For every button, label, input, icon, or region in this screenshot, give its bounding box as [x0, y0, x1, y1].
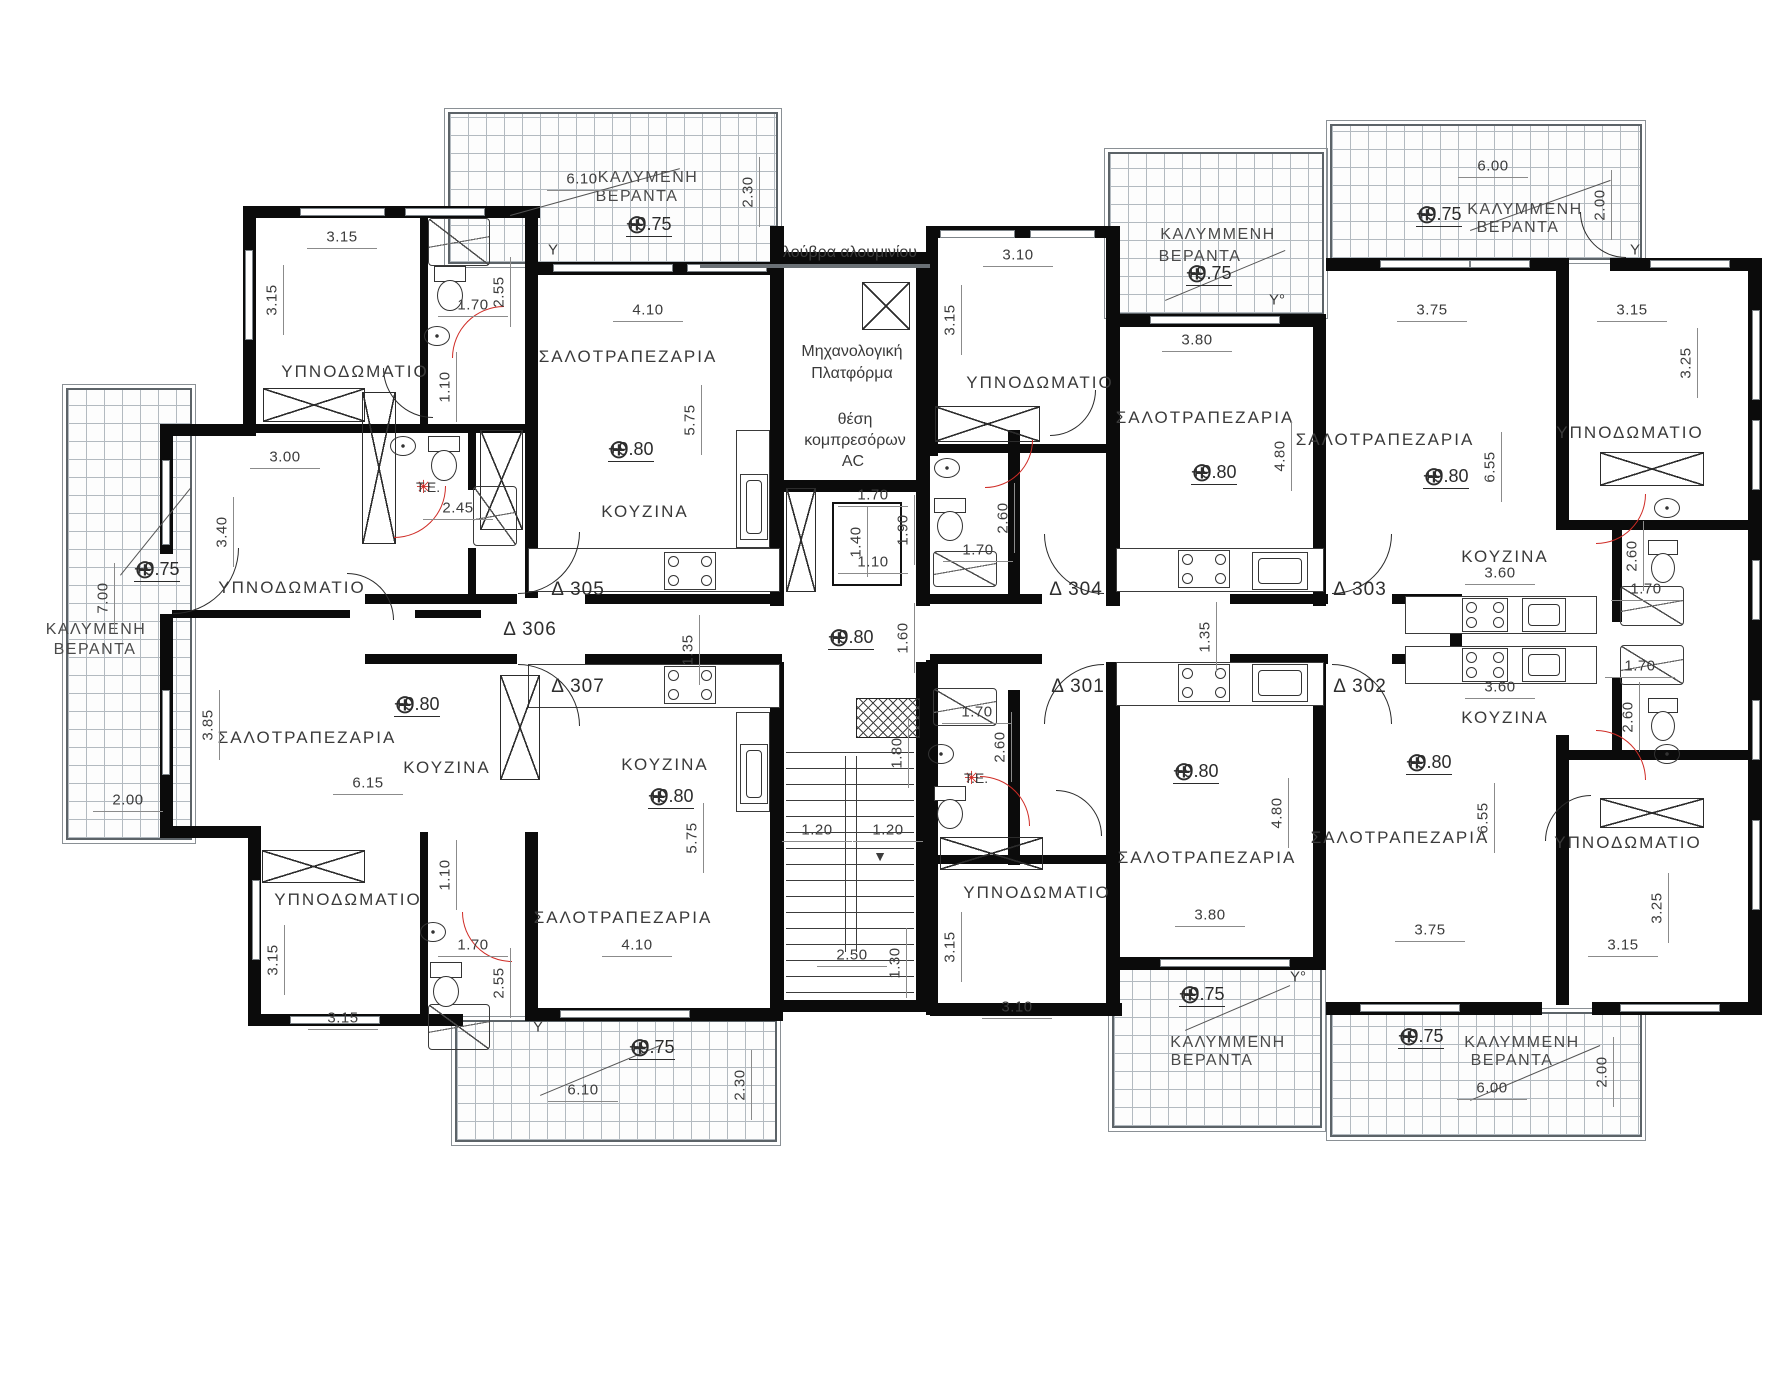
- dimension-label: 1.35: [1197, 621, 1214, 652]
- shower-icon: [428, 218, 490, 266]
- toilet-bowl-icon: [433, 976, 459, 1007]
- dimension-line: [817, 966, 887, 967]
- toilet-bowl-icon: [937, 799, 963, 829]
- dimension-line: [983, 266, 1053, 267]
- dimension-label: 2.55: [491, 276, 508, 307]
- closet-crossbox: [262, 850, 365, 883]
- burner-icon: [1215, 687, 1226, 698]
- window: [1752, 310, 1760, 400]
- burner-icon: [1466, 652, 1477, 663]
- burner-icon: [1493, 652, 1504, 663]
- elevation-value: +9.80: [1173, 761, 1219, 784]
- stair-direction-arrow: ▼: [873, 848, 887, 864]
- stove-icon: [1178, 664, 1230, 702]
- sink-icon: [1522, 598, 1566, 632]
- toilet-bowl-icon: [1651, 711, 1675, 741]
- elevation-value: +9.80: [608, 439, 654, 462]
- dimension-label: 7.00: [95, 582, 112, 613]
- burner-icon: [1215, 573, 1226, 584]
- dimension-line: [914, 603, 915, 673]
- toilet-bowl-icon: [937, 511, 963, 541]
- dimension-line: [1291, 421, 1292, 491]
- dimension-label: 2.60: [1624, 540, 1641, 571]
- annotation-label: θέση: [838, 411, 873, 429]
- dimension-line: [1014, 483, 1015, 553]
- dimension-line: [438, 956, 508, 957]
- toilet-bowl-icon: [1651, 553, 1675, 583]
- stove-icon: [664, 552, 716, 590]
- apartment-number-label: Δ 303: [1333, 579, 1387, 601]
- window: [162, 690, 170, 775]
- annotation-label: κομπρεσόρων: [804, 432, 906, 450]
- wall: [160, 424, 256, 436]
- room-label: ΥΠΝΟΔΩΜΑΤΙΟ: [218, 578, 365, 598]
- dimension-label: 3.80: [1181, 332, 1212, 349]
- annotation-label: λούβρα αλουμινίου: [783, 244, 917, 262]
- dimension-label: 4.80: [1269, 797, 1286, 828]
- sink-basin-icon: [1528, 654, 1560, 676]
- covered-veranda-area: [455, 1020, 777, 1142]
- room-label: ΚΟΥΖΙΝΑ: [601, 502, 689, 522]
- room-label: ΥΠΝΟΔΩΜΑΤΙΟ: [1554, 833, 1701, 853]
- elevation-value: +9.75: [1416, 204, 1462, 227]
- dimension-label: 3.15: [327, 1010, 358, 1027]
- dimension-line: [1175, 926, 1245, 927]
- dimension-label: 1.70: [1624, 658, 1655, 675]
- dimension-label: 6.15: [352, 775, 383, 792]
- dimension-label: 1.90: [895, 514, 912, 545]
- dimension-label: 1.10: [857, 554, 888, 571]
- dimension-label: 3.15: [942, 304, 959, 335]
- burner-icon: [701, 689, 712, 700]
- dimension-line: [853, 841, 923, 842]
- burner-icon: [701, 575, 712, 586]
- door-arc: [1056, 790, 1102, 836]
- wall: [770, 662, 784, 1012]
- stove-icon: [1462, 648, 1508, 682]
- dimension-line: [1639, 682, 1640, 752]
- washbasin-icon: [390, 436, 416, 456]
- closet-crossbox: [362, 392, 396, 544]
- window: [1620, 1004, 1720, 1012]
- window: [1752, 420, 1760, 490]
- room-label: ΚΟΥΖΙΝΑ: [621, 755, 709, 775]
- elevation-value: +9.75: [1398, 1026, 1444, 1049]
- window: [405, 208, 485, 216]
- washbasin-icon: [1654, 744, 1680, 764]
- dimension-label: 6.00: [1477, 158, 1508, 175]
- toilet-icon: [1648, 540, 1678, 584]
- wall: [782, 1000, 918, 1012]
- window: [1380, 260, 1470, 268]
- wall: [248, 206, 540, 218]
- elevation-value: +9.80: [394, 694, 440, 717]
- dimension-label: 3.25: [1649, 892, 1666, 923]
- dimension-label: 3.00: [269, 449, 300, 466]
- dimension-label: 4.10: [632, 302, 663, 319]
- veranda-label: ΚΑΛΥΜΜΕΝΗ: [1464, 1034, 1579, 1052]
- dimension-label: 6.55: [1482, 451, 1499, 482]
- room-label: ΣΑΛΟΤΡΑΠΕΖΑΡΙΑ: [1296, 430, 1475, 450]
- closet-crossbox: [263, 388, 365, 422]
- wall: [585, 594, 782, 604]
- wall: [172, 610, 350, 618]
- veranda-label: ΚΑΛΥΜΕΝΗ: [598, 169, 699, 187]
- burner-icon: [701, 670, 712, 681]
- veranda-label: ΒΕΡΑΝΤΑ: [1471, 1052, 1554, 1070]
- burner-icon: [1182, 668, 1193, 679]
- window: [1030, 230, 1095, 238]
- apartment-number-label: Δ 304: [1049, 579, 1103, 601]
- dimension-line: [1465, 584, 1535, 585]
- wall: [160, 826, 261, 838]
- wall: [525, 206, 538, 442]
- window: [940, 230, 1015, 238]
- dimension-label: 1.70: [961, 704, 992, 721]
- dimension-line: [943, 561, 1013, 562]
- veranda-label: ΚΑΛΥΜΜΕΝΗ: [1170, 1034, 1285, 1052]
- room-label: ΥΠΝΟΔΩΜΑΤΙΟ: [963, 883, 1110, 903]
- sink-basin-icon: [1258, 558, 1302, 584]
- dimension-label: 2.60: [995, 502, 1012, 533]
- dimension-line: [1458, 177, 1528, 178]
- shower-icon: [428, 1004, 490, 1050]
- elevation-value: +9.80: [1406, 752, 1452, 775]
- elevation-value: +9.75: [626, 214, 672, 237]
- veranda-label: ΒΕΡΑΝΤΑ: [54, 641, 137, 659]
- dimension-label: 6.10: [566, 171, 597, 188]
- bathroom-door-arc: [1596, 494, 1646, 544]
- dimension-line: [1611, 600, 1681, 601]
- washbasin-icon: [420, 922, 446, 942]
- dimension-label: 3.25: [1678, 347, 1695, 378]
- burner-icon: [668, 670, 679, 681]
- veranda-label: ΚΑΛΥΜΜΕΝΗ: [1160, 226, 1275, 244]
- washbasin-icon: [424, 326, 450, 346]
- dimension-line: [1597, 321, 1667, 322]
- bathroom-door-arc: [452, 306, 504, 358]
- stove-icon: [1462, 598, 1508, 632]
- burner-icon: [668, 556, 679, 567]
- apartment-number-label: Δ 302: [1333, 676, 1387, 698]
- dimension-label: 4.10: [621, 937, 652, 954]
- dimension-label: 1.10: [437, 859, 454, 890]
- dimension-line: [1611, 170, 1612, 240]
- dimension-line: [908, 718, 909, 788]
- dimension-line: [250, 468, 320, 469]
- dimension-label: 1.10: [437, 371, 454, 402]
- dimension-line: [914, 495, 915, 565]
- apartment-number-label: Δ 301: [1051, 676, 1105, 698]
- wall: [1230, 594, 1328, 604]
- burner-icon: [701, 556, 712, 567]
- dimension-line: [1697, 328, 1698, 398]
- dimension-label: 2.30: [740, 176, 757, 207]
- dimension-line: [1494, 783, 1495, 853]
- dimension-line: [703, 803, 704, 873]
- closet-crossbox: [1600, 798, 1704, 828]
- elevation-value: +9.75: [629, 1037, 675, 1060]
- dimension-label: 1.70: [457, 937, 488, 954]
- wall: [1556, 735, 1569, 1005]
- dimension-line: [93, 811, 163, 812]
- burner-icon: [1493, 602, 1504, 613]
- veranda-label: ΒΕΡΑΝΤΑ: [1171, 1052, 1254, 1070]
- toilet-icon: [428, 436, 460, 482]
- bathroom-door-arc: [985, 440, 1033, 488]
- dimension-line: [1162, 351, 1232, 352]
- dimension-line: [1395, 941, 1465, 942]
- dimension-label: 2.00: [1594, 1056, 1611, 1087]
- wall: [1313, 662, 1326, 962]
- toilet-icon: [934, 786, 966, 830]
- dimension-line: [284, 925, 285, 995]
- closet-crossbox: [862, 282, 910, 330]
- dimension-label: 3.10: [1002, 247, 1033, 264]
- dimension-label: 6.00: [1476, 1080, 1507, 1097]
- dimension-line: [308, 1029, 378, 1030]
- dimension-line: [548, 1101, 618, 1102]
- sink-icon: [1522, 648, 1566, 682]
- sink-basin-icon: [1258, 670, 1302, 696]
- dimension-line: [1011, 712, 1012, 782]
- te-label: Τ.Ε.: [416, 479, 440, 495]
- sink-icon: [740, 474, 768, 540]
- burner-icon: [1466, 617, 1477, 628]
- dimension-label: 6.55: [1475, 802, 1492, 833]
- aluminium-louvre: [700, 264, 930, 268]
- dimension-line: [1605, 677, 1675, 678]
- dimension-line: [782, 841, 852, 842]
- closet-crossbox: [1600, 452, 1704, 486]
- shower-icon: [473, 486, 517, 546]
- dimension-label: 3.15: [1607, 937, 1638, 954]
- dimension-label: 2.60: [1620, 701, 1637, 732]
- elevation-value: +9.80: [828, 627, 874, 650]
- burner-icon: [1182, 687, 1193, 698]
- dimension-line: [699, 615, 700, 685]
- section-marker: Y°: [1290, 969, 1306, 986]
- dimension-line: [1501, 432, 1502, 502]
- te-label: Τ.Ε.: [964, 770, 988, 786]
- window: [1752, 700, 1760, 760]
- dimension-line: [1668, 873, 1669, 943]
- dimension-label: 3.75: [1416, 302, 1447, 319]
- washbasin-icon: [1654, 498, 1680, 518]
- dimension-label: 2.60: [992, 731, 1009, 762]
- stove-icon: [1178, 550, 1230, 588]
- apartment-number-label: Δ 307: [551, 676, 605, 698]
- room-label: ΣΑΛΟΤΡΑΠΕΖΑΡΙΑ: [1311, 828, 1490, 848]
- burner-icon: [1182, 554, 1193, 565]
- burner-icon: [1466, 602, 1477, 613]
- dimension-label: 1.35: [680, 634, 697, 665]
- sink-basin-icon: [746, 750, 762, 798]
- washbasin-icon: [928, 744, 954, 764]
- burner-icon: [668, 689, 679, 700]
- dimension-line: [1457, 1099, 1527, 1100]
- dimension-label: 4.80: [1272, 440, 1289, 471]
- wall: [468, 428, 476, 490]
- sink-icon: [1252, 664, 1308, 702]
- dimension-label: 3.60: [1484, 679, 1515, 696]
- elevation-value: +9.75: [1179, 984, 1225, 1007]
- dimension-label: 3.15: [264, 284, 281, 315]
- dimension-line: [961, 285, 962, 355]
- dimension-line: [547, 190, 617, 191]
- room-label: ΥΠΝΟΔΩΜΑΤΙΟ: [274, 890, 421, 910]
- dimension-label: 1.80: [889, 737, 906, 768]
- dimension-label: 1.20: [872, 822, 903, 839]
- dimension-line: [456, 352, 457, 422]
- veranda-label: ΚΑΛΥΜΜΕΝΗ: [1467, 201, 1582, 219]
- dimension-line: [838, 573, 908, 574]
- dimension-line: [114, 563, 115, 633]
- window: [245, 250, 253, 340]
- dimension-line: [233, 497, 234, 567]
- wall: [930, 594, 1042, 604]
- dimension-line: [613, 321, 683, 322]
- wall: [415, 610, 481, 618]
- elevation-value: +9.80: [1191, 462, 1237, 485]
- dimension-line: [838, 506, 908, 507]
- room-label: ΣΑΛΟΤΡΑΠΕΖΑΡΙΑ: [1118, 848, 1297, 868]
- window: [560, 1010, 690, 1018]
- closet-crossbox: [940, 837, 1043, 870]
- window: [252, 880, 260, 960]
- dimension-label: 2.30: [732, 1069, 749, 1100]
- window: [162, 460, 170, 545]
- window: [300, 208, 385, 216]
- burner-icon: [668, 575, 679, 586]
- dimension-line: [602, 956, 672, 957]
- dimension-line: [510, 257, 511, 327]
- dimension-label: 1.20: [801, 822, 832, 839]
- dimension-label: 2.00: [112, 792, 143, 809]
- elevation-value: +9.80: [1423, 466, 1469, 489]
- door-arc: [1050, 390, 1096, 436]
- sink-basin-icon: [1528, 604, 1560, 626]
- toilet-icon: [430, 962, 462, 1008]
- closet-crossbox: [786, 488, 816, 592]
- dimension-line: [1588, 956, 1658, 957]
- dimension-line: [219, 690, 220, 760]
- room-label: ΥΠΝΟΔΩΜΑΤΙΟ: [1556, 423, 1703, 443]
- elevation-value: +9.75: [1186, 263, 1232, 286]
- dimension-label: 2.00: [1592, 189, 1609, 220]
- dimension-line: [1465, 698, 1535, 699]
- dimension-label: 1.30: [887, 947, 904, 978]
- dimension-label: 2.45: [442, 500, 473, 517]
- dimension-line: [307, 248, 377, 249]
- annotation-label: Μηχανολογική: [801, 343, 902, 361]
- closet-crossbox: [935, 406, 1040, 442]
- apartment-number-label: Δ 306: [503, 619, 557, 641]
- room-label: ΚΟΥΖΙΝΑ: [403, 758, 491, 778]
- dimension-label: 6.10: [567, 1082, 598, 1099]
- wall: [1560, 520, 1760, 530]
- elevation-value: +9.75: [134, 559, 180, 582]
- room-label: ΥΠΝΟΔΩΜΑΤΙΟ: [966, 373, 1113, 393]
- veranda-label: ΚΑΛΥΜΕΝΗ: [46, 621, 147, 639]
- dimension-line: [423, 519, 493, 520]
- room-label: ΚΟΥΖΙΝΑ: [1461, 708, 1549, 728]
- dimension-label: 1.60: [895, 622, 912, 653]
- dimension-label: 1.70: [457, 297, 488, 314]
- dimension-label: 3.85: [200, 709, 217, 740]
- window: [1470, 260, 1530, 268]
- window: [1360, 1004, 1460, 1012]
- wall: [1556, 258, 1569, 530]
- dimension-line: [759, 157, 760, 227]
- stair-step: [786, 992, 914, 993]
- wall: [930, 654, 1042, 664]
- dimension-label: 5.75: [682, 404, 699, 435]
- dimension-label: 3.75: [1414, 922, 1445, 939]
- dimension-label: 3.15: [265, 944, 282, 975]
- wall: [468, 548, 476, 598]
- dimension-line: [438, 316, 508, 317]
- dimension-label: 3.15: [942, 931, 959, 962]
- veranda-label: ΒΕΡΑΝΤΑ: [1477, 219, 1560, 237]
- toilet-bowl-icon: [431, 450, 457, 481]
- room-label: ΥΠΝΟΔΩΜΑΤΙΟ: [281, 362, 428, 382]
- dimension-label: 3.15: [326, 229, 357, 246]
- annotation-label: AC: [842, 453, 864, 471]
- dimension-line: [1397, 321, 1467, 322]
- dimension-line: [456, 840, 457, 910]
- dimension-line: [1216, 602, 1217, 672]
- window: [553, 264, 673, 272]
- dimension-label: 1.70: [962, 542, 993, 559]
- window: [1650, 260, 1730, 268]
- wall: [365, 654, 517, 664]
- dimension-line: [283, 265, 284, 335]
- dimension-label: 2.55: [491, 967, 508, 998]
- toilet-icon: [1648, 698, 1678, 742]
- dimension-label: 1.70: [857, 487, 888, 504]
- section-marker: Y: [533, 1019, 543, 1036]
- shaft-hatch: [856, 698, 920, 738]
- sink-icon: [740, 744, 768, 804]
- elevation-value: +9.80: [648, 786, 694, 809]
- dimension-line: [751, 1050, 752, 1120]
- annotation-label: Πλατφόρμα: [811, 365, 893, 383]
- section-marker: Y: [1630, 242, 1640, 259]
- window: [1752, 820, 1760, 910]
- dimension-line: [942, 723, 1012, 724]
- dimension-label: 5.75: [684, 822, 701, 853]
- dimension-label: 3.40: [214, 516, 231, 547]
- dimension-label: 3.10: [1001, 999, 1032, 1016]
- burner-icon: [1182, 573, 1193, 584]
- sink-icon: [1252, 552, 1308, 590]
- dimension-label: 3.15: [1616, 302, 1647, 319]
- dimension-label: 2.50: [836, 947, 867, 964]
- window: [1160, 959, 1290, 967]
- dimension-label: 3.80: [1194, 907, 1225, 924]
- dimension-line: [906, 928, 907, 998]
- window: [1150, 316, 1280, 324]
- dimension-line: [1613, 1037, 1614, 1107]
- dimension-line: [510, 948, 511, 1018]
- dimension-line: [982, 1018, 1052, 1019]
- burner-icon: [1466, 667, 1477, 678]
- dimension-label: 1.70: [1630, 581, 1661, 598]
- room-label: ΣΑΛΟΤΡΑΠΕΖΑΡΙΑ: [218, 728, 397, 748]
- dimension-line: [1288, 778, 1289, 848]
- stair-rail: [845, 756, 857, 952]
